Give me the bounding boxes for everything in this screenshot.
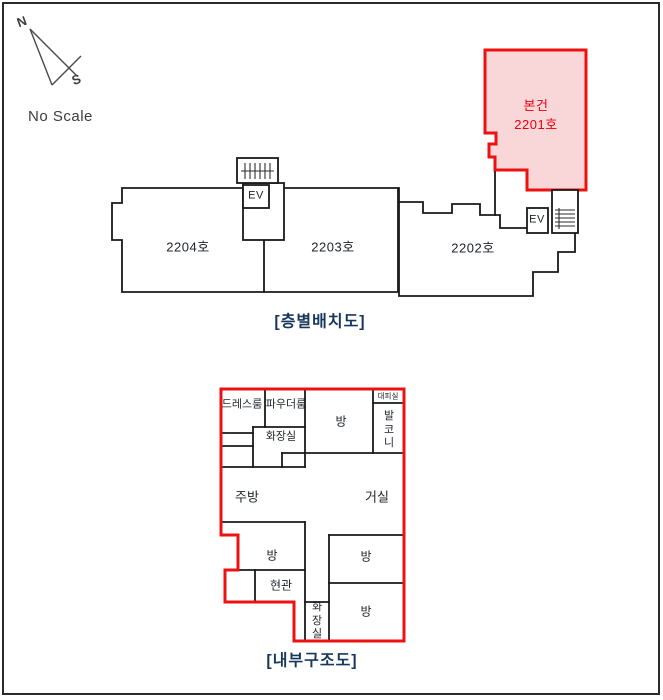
- subject-unit-number: 2201호: [514, 115, 557, 134]
- room-label-balcony: 발코니: [382, 410, 396, 451]
- subject-name: 본건: [514, 96, 557, 115]
- unit-2202-top-edge: [399, 202, 527, 228]
- room-label-room-bl: 방: [266, 550, 277, 563]
- unit-label-2202: 2202호: [451, 242, 494, 255]
- floor-plan-title: [층별배치도]: [274, 316, 365, 329]
- floor-plan-page: N S No Scale: [0, 0, 663, 700]
- plan-drawing: [0, 0, 663, 700]
- room-label-powderroom: 파우더룸: [266, 399, 306, 412]
- room-label-entrance: 현관: [270, 580, 292, 593]
- room-label-bathroom-lower: 화장실: [310, 601, 324, 642]
- unit-label-2203: 2203호: [311, 241, 354, 254]
- room-label-room-top: 방: [335, 416, 346, 429]
- room-label-living: 거실: [365, 491, 389, 504]
- interior-title: [내부구조도]: [266, 655, 357, 668]
- room-label-kitchen: 주방: [235, 491, 259, 504]
- room-label-room-r1: 방: [360, 551, 371, 564]
- elevator-label-right: EV: [529, 214, 545, 227]
- room-label-bathroom-upper: 화장실: [266, 431, 296, 444]
- room-label-refuge: 대피실: [378, 390, 399, 403]
- unit-label-2204: 2204호: [166, 241, 209, 254]
- subject-unit-label: 본건 2201호: [514, 96, 557, 134]
- room-label-dressroom: 드레스룸: [222, 399, 262, 412]
- room-label-room-r2: 방: [360, 606, 371, 619]
- elevator-label-top: EV: [248, 190, 264, 203]
